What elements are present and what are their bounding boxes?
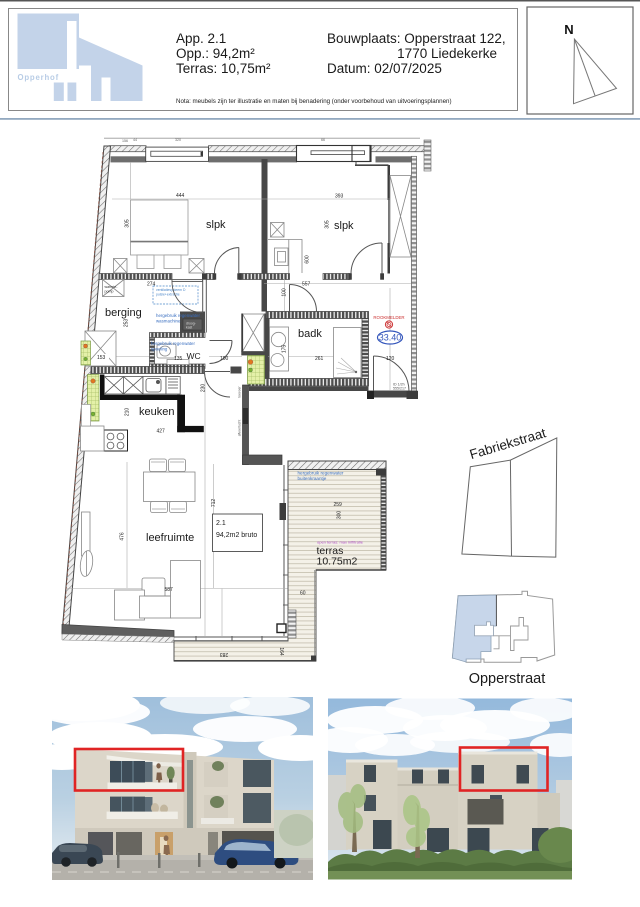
svg-text:ROOKMELDER: ROOKMELDER xyxy=(373,315,404,320)
svg-text:App. 2.1: App. 2.1 xyxy=(176,31,226,46)
svg-text:557: 557 xyxy=(302,282,311,288)
svg-text:Datum: 02/07/2025: Datum: 02/07/2025 xyxy=(327,61,442,76)
svg-text:Nota: meubels zijn ter illustr: Nota: meubels zijn ter illustratie en ma… xyxy=(176,98,452,105)
svg-text:100: 100 xyxy=(220,356,229,362)
svg-text:warmte-: warmte- xyxy=(105,285,119,289)
svg-text:230: 230 xyxy=(201,384,207,393)
svg-text:555/217: 555/217 xyxy=(393,387,406,391)
svg-text:444: 444 xyxy=(176,193,185,199)
svg-text:274: 274 xyxy=(147,282,156,288)
svg-text:427: 427 xyxy=(157,429,166,435)
svg-text:WC: WC xyxy=(187,351,201,361)
svg-text:66: 66 xyxy=(321,138,325,142)
svg-text:164: 164 xyxy=(278,647,284,656)
svg-text:open terras: max infiltratie: open terras: max infiltratie xyxy=(317,540,364,545)
svg-text:buitenkraantje: buitenkraantje xyxy=(298,476,327,481)
svg-text:100: 100 xyxy=(282,288,288,297)
svg-text:slpk: slpk xyxy=(334,220,354,232)
svg-text:712: 712 xyxy=(211,499,217,508)
svg-text:Bouwplaats: Opperstraat 122,: Bouwplaats: Opperstraat 122, xyxy=(327,31,506,46)
svg-text:Terras: 10,75m²: Terras: 10,75m² xyxy=(176,61,271,76)
svg-text:pulsie+extractie: pulsie+extractie xyxy=(156,293,180,297)
svg-text:33.40: 33.40 xyxy=(379,333,402,343)
svg-text:Opp.: 94,2m²: Opp.: 94,2m² xyxy=(176,46,255,61)
svg-text:94,2m2 bruto: 94,2m2 bruto xyxy=(216,532,257,539)
svg-text:kast: kast xyxy=(186,326,192,330)
svg-text:pomp: pomp xyxy=(105,290,114,294)
svg-text:305: 305 xyxy=(125,219,131,228)
svg-text:N: N xyxy=(564,22,573,37)
svg-text:Opperstraat: Opperstraat xyxy=(469,671,546,687)
svg-text:283: 283 xyxy=(220,651,229,657)
svg-text:10.75m2: 10.75m2 xyxy=(317,556,358,568)
svg-text:badk: badk xyxy=(298,328,322,340)
svg-text:hergebruik regenwater: hergebruik regenwater xyxy=(156,313,200,318)
svg-text:2.1: 2.1 xyxy=(216,520,226,527)
svg-text:153: 153 xyxy=(97,355,106,361)
svg-text:afvoerlucht: afvoerlucht xyxy=(238,420,242,437)
svg-text:60: 60 xyxy=(300,591,306,597)
svg-text:hergebruik regenwater: hergebruik regenwater xyxy=(151,341,195,346)
svg-text:259: 259 xyxy=(334,502,343,508)
svg-text:261: 261 xyxy=(315,356,324,362)
svg-text:600: 600 xyxy=(305,255,311,264)
svg-text:spoeling: spoeling xyxy=(151,347,168,352)
svg-text:wasmachine: wasmachine xyxy=(156,319,181,324)
svg-text:393: 393 xyxy=(335,194,344,200)
svg-text:587: 587 xyxy=(165,587,174,593)
svg-text:Opperhof: Opperhof xyxy=(18,73,59,82)
svg-text:320: 320 xyxy=(175,138,181,142)
svg-text:135: 135 xyxy=(174,356,183,362)
svg-text:44: 44 xyxy=(133,138,137,142)
svg-text:156: 156 xyxy=(122,139,128,143)
svg-text:253: 253 xyxy=(124,319,130,328)
svg-text:toevoer: toevoer xyxy=(238,385,242,397)
svg-text:ventilatiesysteem D: ventilatiesysteem D xyxy=(156,288,186,292)
svg-text:keuken: keuken xyxy=(139,406,174,418)
svg-text:300: 300 xyxy=(337,511,343,520)
svg-text:305: 305 xyxy=(325,220,331,229)
svg-text:120: 120 xyxy=(386,356,395,362)
svg-text:210: 210 xyxy=(125,408,131,417)
svg-text:leefruimte: leefruimte xyxy=(146,532,194,544)
svg-text:1770 Liedekerke: 1770 Liedekerke xyxy=(397,46,497,61)
svg-text:slpk: slpk xyxy=(206,219,226,231)
svg-text:hergebruik regenwater: hergebruik regenwater xyxy=(298,471,344,476)
svg-text:berging: berging xyxy=(105,307,142,319)
svg-text:476: 476 xyxy=(120,532,126,541)
svg-text:175: 175 xyxy=(282,345,288,354)
